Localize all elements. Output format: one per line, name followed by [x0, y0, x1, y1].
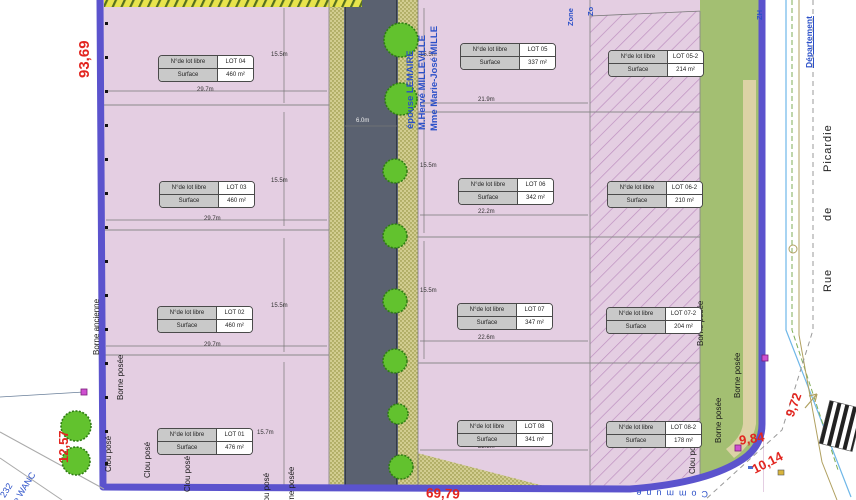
- surface-value: 460 m²: [217, 320, 252, 332]
- surface-header: Surface: [458, 317, 517, 329]
- surface-value: 460 m²: [219, 195, 254, 207]
- surface-header: Surface: [607, 435, 666, 447]
- lot-number-header: N°de lot libre: [609, 51, 668, 63]
- hatched-zone: [590, 11, 700, 487]
- surface-header: Surface: [458, 434, 517, 446]
- dimension-label: 15.5m: [271, 303, 288, 309]
- lot-number-value: LOT 08: [517, 421, 552, 433]
- surface-header: Surface: [160, 195, 219, 207]
- owner-name-2: M.Hervé MILLEVILLE: [417, 35, 428, 130]
- surface-value: 178 m²: [666, 435, 701, 447]
- tree-icon: [388, 404, 408, 424]
- surface-header: Surface: [159, 69, 218, 81]
- lot-number-value: LOT 03: [219, 182, 254, 194]
- measure-bottom: 69,79: [426, 485, 460, 500]
- dimension-label: 15.5m: [271, 178, 288, 184]
- surface-value: 337 m²: [520, 57, 555, 69]
- dimension-label: 15.5m: [420, 163, 437, 169]
- dimension-label: 22.6m: [478, 335, 495, 341]
- surface-value: 476 m²: [217, 442, 252, 454]
- lot-table-07-2: N°de lot libreLOT 07-2 Surface204 m²: [606, 307, 702, 334]
- tree-icon: [389, 455, 413, 479]
- dimension-label: 15.5m: [271, 52, 288, 58]
- dimension-label: 22.2m: [478, 209, 495, 215]
- lot-number-header: N°de lot libre: [159, 56, 218, 68]
- dimension-label: 15.5m: [420, 288, 437, 294]
- lot-number-header: N°de lot libre: [160, 182, 219, 194]
- lot-number-header: N°de lot libre: [158, 307, 217, 319]
- zone-label: Zone: [566, 8, 575, 26]
- clou-pose-label: Clou posé: [183, 456, 192, 492]
- dimension-label: 29.7m: [197, 87, 214, 93]
- surface-value: 214 m²: [668, 64, 703, 76]
- tree-icon: [383, 224, 407, 248]
- tie-lines: [0, 392, 104, 500]
- owner-name-3: Mme Marie-José MILLE: [429, 26, 440, 131]
- lot-number-header: N°de lot libre: [158, 429, 217, 441]
- lot-table-06-2: N°de lot libreLOT 06-2 Surface210 m²: [607, 181, 703, 208]
- surface-value: 204 m²: [666, 321, 701, 333]
- street-name-picardie: Picardie: [822, 124, 834, 172]
- lot-number-header: N°de lot libre: [607, 422, 666, 434]
- lot-number-value: LOT 08-2: [666, 422, 701, 434]
- street-name-de: de: [822, 207, 834, 221]
- dimension-label: 6.0m: [356, 118, 369, 124]
- lot-number-header: N°de lot libre: [461, 44, 520, 56]
- lot-table-07: N°de lot libreLOT 07 Surface347 m²: [457, 303, 553, 330]
- pedestrian-crossing: [819, 401, 856, 452]
- surface-header: Surface: [609, 64, 668, 76]
- lot-table-05-2: N°de lot libreLOT 05-2 Surface214 m²: [608, 50, 704, 77]
- lot-table-01: N°de lot libreLOT 01 Surface476 m²: [157, 428, 253, 455]
- surface-value: 341 m²: [517, 434, 552, 446]
- lot-table-08-2: N°de lot libreLOT 08-2 Surface178 m²: [606, 421, 702, 448]
- lot-number-value: LOT 07: [517, 304, 552, 316]
- tree-icon: [383, 289, 407, 313]
- borne-posee-label: Borne posée: [287, 467, 296, 500]
- surface-value: 460 m²: [218, 69, 253, 81]
- surface-header: Surface: [461, 57, 520, 69]
- tree-icon: [383, 349, 407, 373]
- surface-value: 342 m²: [518, 192, 553, 204]
- owner-name-1: épouse LEMAIRE: [405, 50, 416, 129]
- plan-drawing: [0, 0, 856, 500]
- lot-number-header: N°de lot libre: [459, 179, 518, 191]
- street-name-rue: Rue: [822, 269, 834, 292]
- surface-value: 347 m²: [517, 317, 552, 329]
- lot-number-value: LOT 06: [518, 179, 553, 191]
- departement-label: Département: [804, 16, 814, 68]
- zone-label-cut: Zo: [586, 7, 595, 16]
- clou-pose-label: Clou posé: [262, 473, 271, 500]
- borne-ancienne-label: Borne ancienne: [92, 299, 101, 355]
- road-verge-left: [329, 0, 344, 489]
- surface-value: 210 m²: [667, 195, 702, 207]
- clou-pose-label: Clou posé: [104, 436, 113, 472]
- zh-label: ZH: [755, 10, 764, 20]
- lot-table-05: N°de lot libreLOT 05 Surface337 m²: [460, 43, 556, 70]
- measure-left-top: 93,69: [76, 40, 93, 78]
- surface-header: Surface: [608, 195, 667, 207]
- lot-number-value: LOT 07-2: [666, 308, 701, 320]
- dimension-label: 15.7m: [257, 430, 274, 436]
- lot-number-header: N°de lot libre: [458, 421, 517, 433]
- surface-header: Surface: [459, 192, 518, 204]
- dimension-label: 29.7m: [204, 342, 221, 348]
- lot-number-header: N°de lot libre: [607, 308, 666, 320]
- surface-header: Surface: [158, 320, 217, 332]
- dimension-label: 21.9m: [478, 97, 495, 103]
- borne-posee-label: Borne posée: [733, 353, 742, 398]
- borne-posee-label: Borne posée: [116, 355, 125, 400]
- tree-icon: [383, 159, 407, 183]
- borne-posee-label: Borne posée: [714, 398, 723, 443]
- lot-number-value: LOT 05: [520, 44, 555, 56]
- subdivision-plan: N°de lot libreLOT 01 Surface476 m² N°de …: [0, 0, 856, 500]
- dimension-label: 29.7m: [204, 216, 221, 222]
- lot-table-03: N°de lot libreLOT 03 Surface460 m²: [159, 181, 255, 208]
- lot-number-header: N°de lot libre: [458, 304, 517, 316]
- measure-left-bottom: 12,57: [56, 430, 71, 463]
- lot-number-value: LOT 01: [217, 429, 252, 441]
- lot-table-02: N°de lot libreLOT 02 Surface460 m²: [157, 306, 253, 333]
- surface-header: Surface: [158, 442, 217, 454]
- lot-number-value: LOT 04: [218, 56, 253, 68]
- lot-number-header: N°de lot libre: [608, 182, 667, 194]
- lot-number-value: LOT 05-2: [668, 51, 703, 63]
- lot-number-value: LOT 02: [217, 307, 252, 319]
- lot-table-04: N°de lot libreLOT 04 Surface460 m²: [158, 55, 254, 82]
- surface-header: Surface: [607, 321, 666, 333]
- lot-number-value: LOT 06-2: [667, 182, 702, 194]
- lot-table-06: N°de lot libreLOT 06 Surface342 m²: [458, 178, 554, 205]
- clou-pose-label: Clou posé: [143, 442, 152, 478]
- lot-table-08: N°de lot libreLOT 08 Surface341 m²: [457, 420, 553, 447]
